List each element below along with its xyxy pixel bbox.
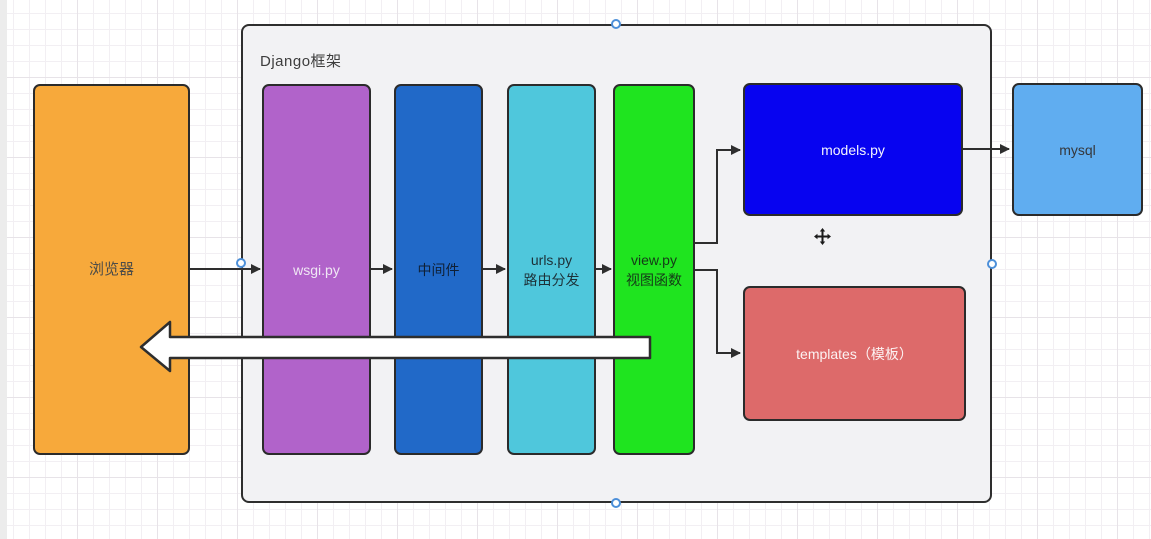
screen-edge-strip: [0, 0, 7, 539]
connector-view-to-models[interactable]: [695, 150, 740, 243]
selection-handle-bottom[interactable]: [611, 498, 621, 508]
selection-handle-left[interactable]: [236, 258, 246, 268]
move-icon: [814, 228, 831, 245]
connector-view-to-templates[interactable]: [695, 270, 740, 353]
selection-handle-top[interactable]: [611, 19, 621, 29]
connectors-layer: [0, 0, 1151, 539]
move-icon-glyph: [814, 228, 831, 245]
selection-handle-right[interactable]: [987, 259, 997, 269]
return-arrow-view-to-browser[interactable]: [141, 322, 650, 371]
diagram-canvas[interactable]: Django框架 浏览器 wsgi.py 中间件 urls.py 路由分发 vi…: [0, 0, 1151, 539]
